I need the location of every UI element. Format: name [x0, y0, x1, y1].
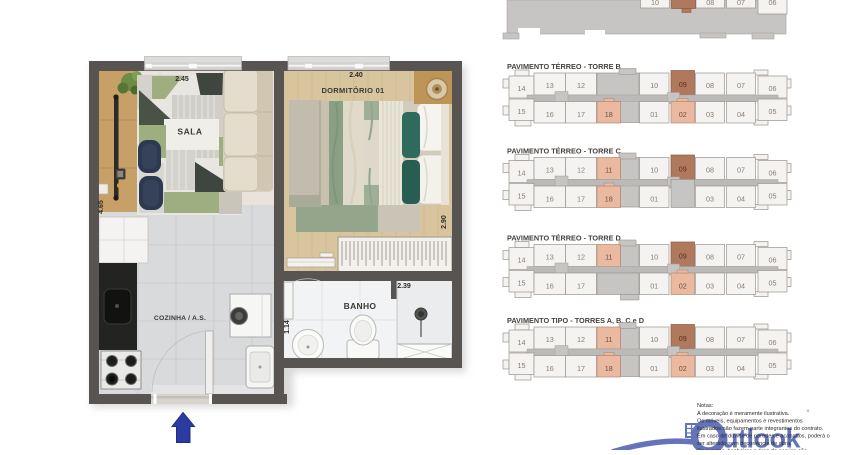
svg-text:ser alterado sem decorrência d: ser alterado sem decorrência de obra.: [697, 441, 792, 447]
svg-text:09: 09: [679, 165, 687, 174]
svg-text:06: 06: [769, 84, 777, 93]
svg-text:16: 16: [546, 110, 554, 119]
svg-text:09: 09: [679, 334, 687, 343]
svg-text:01: 01: [650, 195, 658, 204]
svg-text:13: 13: [546, 166, 554, 175]
svg-text:15: 15: [518, 279, 526, 288]
svg-text:PAVIMENTO TÉRREO - TORRE C: PAVIMENTO TÉRREO - TORRE C: [507, 147, 622, 156]
svg-text:2.45: 2.45: [175, 76, 189, 83]
svg-text:08: 08: [706, 166, 714, 175]
svg-text:18: 18: [605, 195, 613, 204]
svg-text:01: 01: [650, 364, 658, 373]
svg-text:02: 02: [679, 110, 687, 119]
svg-text:16: 16: [546, 195, 554, 204]
svg-text:10: 10: [650, 81, 658, 90]
svg-text:12: 12: [577, 335, 585, 344]
svg-text:11: 11: [605, 166, 612, 175]
svg-text:15: 15: [518, 361, 526, 370]
svg-text:08: 08: [706, 253, 714, 262]
svg-text:06: 06: [769, 169, 777, 178]
svg-text:15: 15: [518, 192, 526, 201]
svg-text:SALA: SALA: [177, 127, 202, 137]
svg-text:Em caso de dúvida de paredes e: Em caso de dúvida de paredes e acabados,…: [697, 434, 830, 440]
svg-text:14: 14: [518, 84, 526, 93]
svg-text:12: 12: [577, 81, 585, 90]
svg-text:03: 03: [706, 110, 714, 119]
svg-text:12: 12: [577, 166, 585, 175]
svg-text:DORMITÓRIO 01: DORMITÓRIO 01: [321, 86, 384, 95]
svg-text:05: 05: [769, 192, 777, 201]
svg-text:15: 15: [518, 107, 526, 116]
svg-text:10: 10: [650, 166, 658, 175]
svg-text:16: 16: [546, 364, 554, 373]
svg-text:05: 05: [769, 361, 777, 370]
svg-text:×: ×: [806, 408, 810, 415]
svg-text:14: 14: [518, 169, 526, 178]
svg-text:17: 17: [577, 364, 585, 373]
svg-text:11: 11: [605, 253, 612, 262]
svg-text:01: 01: [650, 282, 658, 291]
svg-text:02: 02: [679, 364, 687, 373]
svg-text:03: 03: [706, 282, 714, 291]
svg-text:17: 17: [577, 195, 585, 204]
svg-text:10: 10: [650, 335, 658, 344]
svg-text:03: 03: [706, 364, 714, 373]
svg-text:14: 14: [518, 256, 526, 265]
svg-text:09: 09: [679, 80, 687, 89]
svg-text:04: 04: [737, 195, 745, 204]
svg-text:07: 07: [737, 335, 745, 344]
svg-text:11: 11: [605, 335, 612, 344]
svg-text:10: 10: [650, 253, 658, 262]
svg-text:02: 02: [679, 282, 687, 291]
svg-text:03: 03: [706, 195, 714, 204]
svg-text:07: 07: [737, 81, 745, 90]
svg-text:05: 05: [769, 279, 777, 288]
svg-text:BANHO: BANHO: [344, 301, 377, 311]
svg-text:2.40: 2.40: [349, 72, 363, 79]
svg-text:Notas:: Notas:: [697, 403, 714, 409]
svg-text:01: 01: [650, 110, 658, 119]
svg-text:10: 10: [651, 0, 659, 7]
svg-text:4.65: 4.65: [98, 200, 105, 214]
svg-text:18: 18: [605, 364, 613, 373]
svg-text:13: 13: [546, 335, 554, 344]
svg-text:04: 04: [737, 282, 745, 291]
svg-text:05: 05: [769, 107, 777, 116]
svg-text:14: 14: [518, 338, 526, 347]
svg-text:12: 12: [577, 253, 585, 262]
svg-text:COZINHA / A.S.: COZINHA / A.S.: [154, 315, 206, 322]
svg-text:08: 08: [706, 81, 714, 90]
svg-text:18: 18: [605, 110, 613, 119]
svg-text:PAVIMENTO TÉRREO - TORRE D: PAVIMENTO TÉRREO - TORRE D: [507, 234, 621, 243]
svg-text:Os móveis, equipamentos e reve: Os móveis, equipamentos e revestimentos: [697, 419, 803, 425]
svg-text:16: 16: [546, 282, 554, 291]
svg-text:A decoração é meramente ilustr: A decoração é meramente ilustrativa.: [697, 411, 790, 417]
svg-text:06: 06: [769, 338, 777, 347]
svg-text:08: 08: [706, 335, 714, 344]
svg-text:07: 07: [737, 253, 745, 262]
svg-text:ilustrados não fazem parte int: ilustrados não fazem parte integrantes d…: [697, 426, 824, 432]
svg-text:09: 09: [679, 252, 687, 261]
svg-text:17: 17: [577, 110, 585, 119]
svg-text:1.14: 1.14: [284, 320, 291, 334]
svg-text:13: 13: [546, 81, 554, 90]
svg-text:13: 13: [546, 253, 554, 262]
svg-text:2.90: 2.90: [441, 215, 448, 229]
svg-text:04: 04: [737, 364, 745, 373]
svg-text:07: 07: [737, 166, 745, 175]
svg-text:07: 07: [737, 0, 745, 7]
svg-text:06: 06: [769, 0, 777, 7]
svg-text:17: 17: [577, 282, 585, 291]
svg-text:06: 06: [769, 256, 777, 265]
svg-text:08: 08: [706, 0, 714, 7]
svg-text:2.39: 2.39: [397, 283, 411, 290]
svg-text:04: 04: [737, 110, 745, 119]
